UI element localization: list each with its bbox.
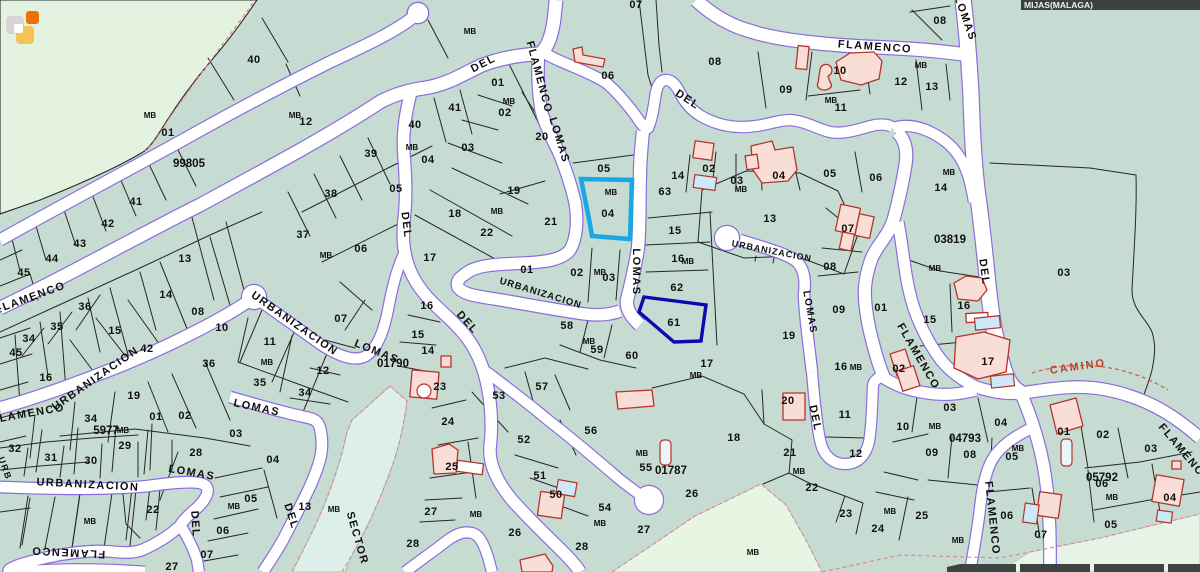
svg-text:05792: 05792: [1086, 472, 1118, 484]
svg-text:21: 21: [783, 447, 796, 459]
svg-text:17: 17: [423, 252, 436, 264]
svg-text:05: 05: [244, 493, 257, 505]
svg-text:06: 06: [216, 525, 229, 537]
svg-text:06: 06: [1000, 510, 1013, 522]
svg-text:25: 25: [445, 461, 458, 473]
svg-text:MB: MB: [1012, 444, 1025, 453]
svg-text:17: 17: [981, 356, 994, 368]
svg-text:51: 51: [533, 470, 546, 482]
svg-text:61: 61: [667, 317, 680, 329]
svg-text:30: 30: [84, 455, 97, 467]
svg-text:45: 45: [9, 347, 22, 359]
svg-text:55: 55: [639, 462, 652, 474]
svg-text:53: 53: [492, 390, 505, 402]
svg-text:05: 05: [389, 183, 402, 195]
svg-text:07: 07: [200, 549, 213, 561]
svg-text:03: 03: [461, 142, 474, 154]
svg-text:03: 03: [1144, 443, 1157, 455]
svg-text:02: 02: [892, 363, 905, 375]
svg-text:28: 28: [189, 447, 202, 459]
svg-text:02: 02: [498, 107, 511, 119]
svg-text:12: 12: [316, 365, 329, 377]
svg-text:40: 40: [408, 119, 421, 131]
svg-text:04: 04: [772, 170, 786, 182]
svg-text:MB: MB: [594, 519, 607, 528]
svg-text:08: 08: [191, 306, 204, 318]
svg-text:MB: MB: [825, 96, 838, 105]
svg-text:16: 16: [834, 361, 847, 373]
svg-text:5977: 5977: [93, 425, 119, 437]
svg-text:03: 03: [943, 402, 956, 414]
svg-text:07: 07: [334, 313, 347, 325]
svg-text:MB: MB: [594, 268, 607, 277]
svg-text:MB: MB: [228, 502, 241, 511]
svg-text:63: 63: [658, 186, 671, 198]
svg-text:19: 19: [782, 330, 795, 342]
svg-text:13: 13: [178, 253, 191, 265]
svg-text:MB: MB: [850, 363, 863, 372]
svg-text:44: 44: [45, 253, 59, 265]
svg-text:15: 15: [668, 225, 681, 237]
svg-text:99805: 99805: [173, 158, 206, 170]
svg-text:24: 24: [441, 416, 455, 428]
svg-text:41: 41: [129, 196, 142, 208]
svg-text:04: 04: [266, 454, 280, 466]
svg-text:MB: MB: [320, 251, 333, 260]
svg-text:MB: MB: [328, 505, 341, 514]
svg-text:18: 18: [727, 432, 740, 444]
svg-text:MB: MB: [884, 507, 897, 516]
svg-text:14: 14: [421, 345, 435, 357]
svg-text:25: 25: [915, 510, 928, 522]
svg-text:08: 08: [963, 449, 976, 461]
svg-text:12: 12: [299, 116, 312, 128]
svg-text:05: 05: [597, 163, 610, 175]
svg-text:16: 16: [39, 372, 52, 384]
svg-text:09: 09: [925, 447, 938, 459]
svg-text:09: 09: [779, 84, 792, 96]
svg-text:MB: MB: [503, 97, 516, 106]
svg-text:01: 01: [1057, 426, 1070, 438]
svg-text:12: 12: [849, 448, 862, 460]
svg-text:DEL: DEL: [188, 510, 202, 537]
svg-text:05: 05: [823, 168, 836, 180]
svg-text:MB: MB: [929, 264, 942, 273]
svg-text:50: 50: [549, 489, 562, 501]
svg-text:07: 07: [629, 0, 642, 11]
svg-text:04: 04: [994, 417, 1008, 429]
svg-text:29: 29: [118, 440, 131, 452]
svg-text:10: 10: [215, 322, 228, 334]
svg-text:MB: MB: [929, 422, 942, 431]
svg-text:20: 20: [535, 131, 548, 143]
svg-text:01: 01: [874, 302, 887, 314]
svg-text:MB: MB: [406, 143, 419, 152]
svg-text:02: 02: [1096, 429, 1109, 441]
svg-text:MIJAS(MALAGA): MIJAS(MALAGA): [1024, 0, 1093, 10]
svg-text:26: 26: [685, 488, 698, 500]
svg-text:MB: MB: [491, 207, 504, 216]
svg-text:35: 35: [50, 321, 63, 333]
svg-text:28: 28: [406, 538, 419, 550]
svg-text:42: 42: [140, 343, 153, 355]
svg-text:14: 14: [671, 170, 685, 182]
svg-text:09: 09: [832, 304, 845, 316]
svg-text:13: 13: [763, 213, 776, 225]
svg-text:01: 01: [520, 264, 533, 276]
svg-text:57: 57: [535, 381, 548, 393]
svg-text:MB: MB: [464, 27, 477, 36]
svg-text:27: 27: [424, 506, 437, 518]
svg-text:22: 22: [480, 227, 493, 239]
svg-text:MB: MB: [636, 449, 649, 458]
svg-text:01787: 01787: [655, 465, 687, 477]
svg-text:34: 34: [298, 387, 312, 399]
svg-text:06: 06: [601, 70, 614, 82]
svg-text:02: 02: [570, 267, 583, 279]
svg-text:45: 45: [17, 267, 30, 279]
svg-text:LOMAS: LOMAS: [630, 248, 642, 295]
svg-text:04: 04: [421, 154, 435, 166]
svg-text:43: 43: [73, 238, 86, 250]
svg-text:15: 15: [923, 314, 936, 326]
svg-text:01: 01: [491, 77, 504, 89]
svg-text:56: 56: [584, 425, 597, 437]
svg-text:36: 36: [202, 358, 215, 370]
svg-text:36: 36: [78, 301, 91, 313]
svg-text:13: 13: [925, 81, 938, 93]
svg-text:32: 32: [8, 443, 21, 455]
svg-text:22: 22: [146, 504, 159, 516]
svg-text:12: 12: [894, 76, 907, 88]
svg-text:42: 42: [101, 218, 114, 230]
svg-text:27: 27: [637, 524, 650, 536]
svg-text:07: 07: [1034, 529, 1047, 541]
svg-text:08: 08: [933, 15, 946, 27]
svg-text:27: 27: [165, 561, 178, 572]
svg-text:14: 14: [934, 182, 948, 194]
svg-text:18: 18: [448, 208, 461, 220]
svg-text:60: 60: [625, 350, 638, 362]
svg-text:02: 02: [702, 163, 715, 175]
svg-text:23: 23: [433, 381, 446, 393]
svg-text:07: 07: [841, 223, 854, 235]
svg-text:41: 41: [448, 102, 461, 114]
svg-text:31: 31: [44, 452, 57, 464]
svg-text:11: 11: [839, 409, 852, 421]
svg-text:01: 01: [161, 127, 174, 139]
svg-text:MB: MB: [583, 337, 596, 346]
svg-text:MB: MB: [943, 168, 956, 177]
svg-text:01790: 01790: [377, 358, 409, 370]
svg-text:34: 34: [84, 413, 98, 425]
svg-text:26: 26: [508, 527, 521, 539]
svg-text:16: 16: [420, 300, 433, 312]
svg-text:02: 02: [178, 410, 191, 422]
svg-text:19: 19: [127, 390, 140, 402]
svg-text:19: 19: [507, 185, 520, 197]
svg-text:03: 03: [229, 428, 242, 440]
svg-text:52: 52: [517, 434, 530, 446]
svg-text:58: 58: [560, 320, 573, 332]
svg-text:08: 08: [823, 261, 836, 273]
svg-text:MB: MB: [605, 188, 618, 197]
svg-text:28: 28: [575, 541, 588, 553]
svg-text:03819: 03819: [934, 234, 966, 246]
svg-text:39: 39: [364, 148, 377, 160]
svg-text:16: 16: [957, 300, 970, 312]
svg-text:23: 23: [839, 508, 852, 520]
svg-text:MB: MB: [952, 536, 965, 545]
svg-text:MB: MB: [747, 548, 760, 557]
svg-text:08: 08: [708, 56, 721, 68]
svg-text:15: 15: [108, 325, 121, 337]
svg-text:40: 40: [247, 54, 260, 66]
svg-text:MB: MB: [682, 257, 695, 266]
svg-text:MB: MB: [735, 185, 748, 194]
svg-text:04793: 04793: [949, 433, 981, 445]
svg-text:MB: MB: [1106, 493, 1119, 502]
svg-text:34: 34: [22, 333, 36, 345]
svg-text:20: 20: [781, 395, 794, 407]
svg-text:05: 05: [1104, 519, 1117, 531]
svg-text:MB: MB: [915, 61, 928, 70]
svg-text:22: 22: [805, 482, 818, 494]
svg-text:MB: MB: [470, 510, 483, 519]
svg-text:21: 21: [544, 216, 557, 228]
svg-text:11: 11: [264, 336, 277, 348]
svg-text:24: 24: [871, 523, 885, 535]
svg-text:38: 38: [324, 188, 337, 200]
svg-text:04: 04: [601, 208, 615, 220]
svg-text:14: 14: [159, 289, 173, 301]
svg-text:35: 35: [253, 377, 266, 389]
svg-text:MB: MB: [690, 371, 703, 380]
svg-text:13: 13: [298, 501, 311, 513]
svg-text:17: 17: [700, 358, 713, 370]
svg-text:37: 37: [296, 229, 309, 241]
svg-text:MB: MB: [261, 358, 274, 367]
svg-text:03: 03: [1057, 267, 1070, 279]
svg-text:MB: MB: [84, 517, 97, 526]
svg-text:01: 01: [149, 411, 162, 423]
svg-text:06: 06: [354, 243, 367, 255]
svg-text:04: 04: [1163, 492, 1177, 504]
svg-text:15: 15: [411, 329, 424, 341]
svg-text:62: 62: [670, 282, 683, 294]
svg-text:54: 54: [598, 502, 612, 514]
svg-text:MB: MB: [793, 467, 806, 476]
svg-text:10: 10: [833, 65, 846, 77]
svg-text:MB: MB: [289, 111, 302, 120]
svg-text:MB: MB: [144, 111, 157, 120]
svg-text:06: 06: [869, 172, 882, 184]
svg-text:10: 10: [896, 421, 909, 433]
